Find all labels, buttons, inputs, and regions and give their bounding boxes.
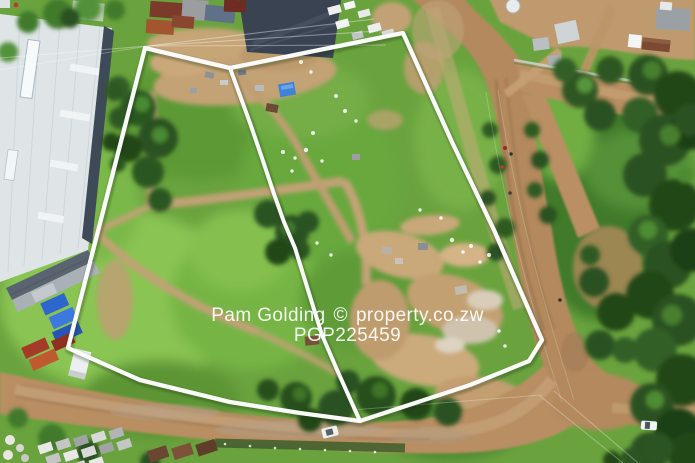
- aerial-photo-art: [0, 0, 695, 463]
- water-tank: [506, 0, 520, 13]
- white-car-right: [641, 420, 658, 430]
- aerial-photo: Pam Golding©property.co.zw PGP225459: [0, 0, 695, 463]
